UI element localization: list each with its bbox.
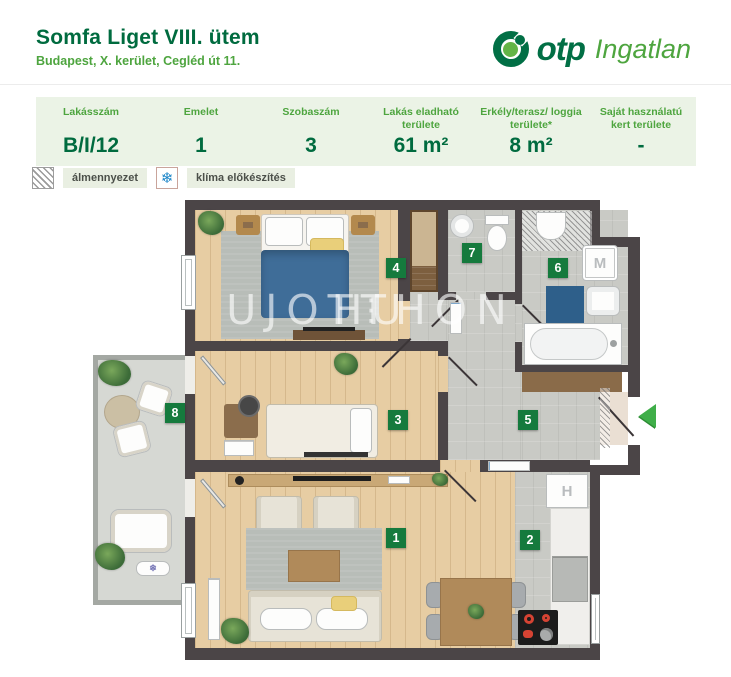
speaker xyxy=(235,476,244,485)
legend-label-dropped-ceiling: álmennyezet xyxy=(63,168,147,188)
kitchen-window xyxy=(591,594,600,644)
watermark-text-right: HU xyxy=(332,286,411,334)
hall-closet xyxy=(410,210,438,292)
wall-segment xyxy=(515,210,522,372)
toilet-bowl xyxy=(487,225,507,251)
fridge: H xyxy=(546,474,588,508)
spec-value: 8 m² xyxy=(509,134,552,158)
room-badge-living: 1 xyxy=(386,528,406,548)
spec-label: Lakás eladható területe xyxy=(369,106,473,132)
balcony-plant-bottom xyxy=(95,543,125,570)
desk-chair xyxy=(238,395,260,417)
hall-radiator xyxy=(488,461,530,471)
stove-burner xyxy=(523,630,533,638)
apartment-spec-table: Lakásszám B/I/12 Emelet 1 Szobaszám 3 La… xyxy=(36,97,696,166)
floor-plan: ❄ xyxy=(88,198,663,663)
spec-label: Emelet xyxy=(184,106,218,119)
balcony-door-gap xyxy=(185,356,195,394)
room-badge-hall: 5 xyxy=(518,410,538,430)
ac-outdoor-unit: ❄ xyxy=(136,561,170,576)
living-radiator xyxy=(208,578,220,640)
toilet-tank xyxy=(485,215,509,225)
nightstand xyxy=(351,215,375,235)
sofa-cushion xyxy=(316,608,368,630)
wall-segment xyxy=(628,237,640,397)
spec-value: B/I/12 xyxy=(63,134,119,158)
otp-ingatlan-logo: otp Ingatlan xyxy=(493,30,691,68)
balcony-door-gap xyxy=(185,479,195,517)
snowflake-icon: ❄ xyxy=(156,167,178,189)
plan-legend: álmennyezet ❄ klíma előkészítés xyxy=(32,167,295,189)
shower-tray xyxy=(536,212,566,240)
sofa-yellow-pillow xyxy=(331,596,357,611)
nightstand xyxy=(236,215,260,235)
spec-col-apartment-number: Lakásszám B/I/12 xyxy=(36,97,146,166)
console-deco xyxy=(388,476,410,484)
legend-label-ac-prep: klíma előkészítés xyxy=(187,168,295,188)
bedroom3-plant xyxy=(334,353,358,375)
bed-pillow xyxy=(265,217,303,246)
table-plant xyxy=(468,604,484,619)
living-plant xyxy=(221,618,249,644)
stove-burner xyxy=(524,614,534,624)
otp-ring-icon xyxy=(493,31,529,67)
entrance-arrow-icon xyxy=(639,404,656,428)
entrance-ceiling-hatch xyxy=(600,388,610,448)
bedroom4-window xyxy=(181,255,196,310)
spec-label: Lakásszám xyxy=(63,106,119,119)
room-badge-bedroom3: 3 xyxy=(388,410,408,430)
spec-value: - xyxy=(638,134,645,158)
wall-segment xyxy=(195,460,590,472)
bedroom3-tv xyxy=(304,452,368,457)
otp-ring-dot xyxy=(515,35,525,45)
living-room-window xyxy=(181,583,196,638)
spec-label: Saját használatú kert területe xyxy=(589,106,693,132)
bathtub-faucet xyxy=(610,340,617,347)
flyer-page: Somfa Liget VIII. ütem Budapest, X. kerü… xyxy=(0,0,731,677)
wall-segment xyxy=(185,648,600,660)
drawer-unit xyxy=(224,440,254,456)
spec-col-garden-area: Saját használatú kert területe - xyxy=(586,97,696,166)
bath-mat xyxy=(546,286,584,324)
wc-basin xyxy=(450,214,474,238)
page-title: Somfa Liget VIII. ütem xyxy=(36,26,260,50)
spec-value: 3 xyxy=(305,134,317,158)
spec-col-room-count: Szobaszám 3 xyxy=(256,97,366,166)
logo-brand-text: otp xyxy=(537,30,585,68)
stove-burner xyxy=(542,614,550,622)
spec-label: Erkély/terasz/ loggia területe* xyxy=(479,106,583,132)
spec-value: 1 xyxy=(195,134,207,158)
spec-col-sellable-area: Lakás eladható területe 61 m² xyxy=(366,97,476,166)
wall-segment xyxy=(185,200,600,210)
stove-dial xyxy=(540,628,553,641)
wall-segment xyxy=(515,365,628,372)
room-badge-balcony: 8 xyxy=(165,403,185,423)
bathtub-basin xyxy=(530,328,608,360)
coffee-table xyxy=(288,550,340,582)
bedroom3-door-gap xyxy=(438,356,448,392)
sofa-cushion xyxy=(260,608,312,630)
spec-label: Szobaszám xyxy=(282,106,339,119)
header-divider xyxy=(0,84,731,85)
bathroom-sink xyxy=(586,286,620,316)
room-badge-kitchen: 2 xyxy=(520,530,540,550)
living-tv xyxy=(293,476,371,481)
console-plant xyxy=(432,473,448,486)
room-badge-bedroom4: 4 xyxy=(386,258,406,278)
bedroom4-plant xyxy=(198,211,224,235)
balcony-plant-top xyxy=(98,360,131,386)
bed-pillow xyxy=(350,408,372,453)
kitchen-sink-unit xyxy=(552,556,588,602)
wall-segment xyxy=(600,465,640,475)
wall-segment xyxy=(195,341,448,351)
room-badge-bathroom: 6 xyxy=(548,258,568,278)
page-subtitle: Budapest, X. kerület, Cegléd út 11. xyxy=(36,54,240,68)
logo-suffix-text: Ingatlan xyxy=(595,34,691,65)
washing-machine: M xyxy=(582,245,618,281)
spec-col-floor: Emelet 1 xyxy=(146,97,256,166)
bathroom-door-gap xyxy=(515,304,522,342)
room-badge-wc: 7 xyxy=(462,243,482,263)
hatch-icon xyxy=(32,167,54,189)
spec-col-balcony-area: Erkély/terasz/ loggia területe* 8 m² xyxy=(476,97,586,166)
spec-value: 61 m² xyxy=(394,134,449,158)
